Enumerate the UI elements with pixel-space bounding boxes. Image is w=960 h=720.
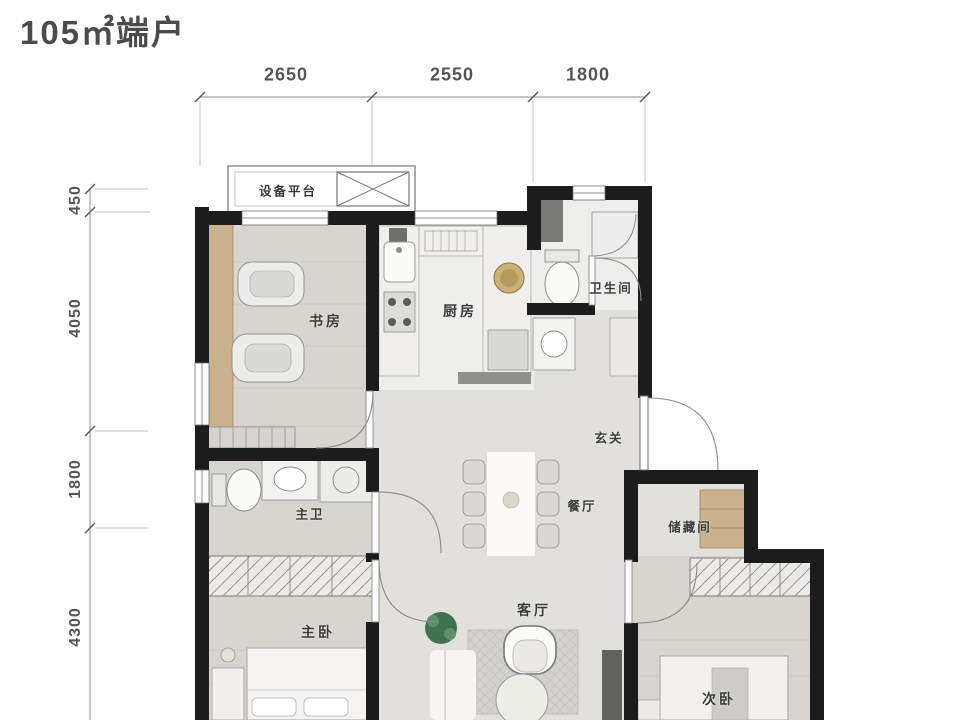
room-label-storage: 储藏间 [668, 517, 712, 536]
room-label-master-bedroom: 主卧 [301, 622, 335, 642]
room-label-kitchen: 厨房 [443, 301, 477, 321]
sofa [430, 650, 476, 720]
room-label-bathroom: 卫生间 [589, 278, 633, 297]
dim-top-1: 2650 [264, 65, 308, 86]
dining-set [463, 452, 559, 556]
room-label-master-bath: 主卫 [295, 504, 324, 523]
room-label-study: 书房 [309, 311, 343, 331]
floorplan-drawing [0, 0, 960, 720]
tall-cabinet [541, 200, 563, 242]
room-label-living: 客厅 [517, 600, 551, 620]
dim-top-2: 2550 [430, 65, 474, 86]
window [195, 470, 209, 503]
lamp-icon [221, 648, 235, 662]
window [573, 186, 605, 200]
room-label-entry: 玄关 [594, 428, 623, 447]
nightstand [638, 700, 660, 720]
room-label-equipment-platform: 设备平台 [259, 181, 317, 200]
ac-unit-icon [337, 172, 409, 206]
dresser [212, 668, 244, 720]
dim-top-3: 1800 [566, 65, 610, 86]
floorplan-page: { "title": "105㎡端户", "dimensions": { "to… [0, 0, 960, 720]
kitchen-peninsula [458, 372, 531, 384]
room-label-dining: 餐厅 [567, 496, 596, 515]
stove-icon [384, 292, 415, 332]
equipment-platform [228, 166, 415, 212]
dim-left-1: 450 [67, 185, 85, 215]
dim-left-3: 1800 [67, 459, 85, 499]
toilet-icon [227, 469, 261, 511]
window [415, 211, 497, 225]
ottoman [496, 674, 548, 720]
tv-cabinet [602, 650, 622, 720]
study-bookshelf [207, 427, 295, 448]
dim-left-2: 4050 [67, 298, 85, 338]
dim-left-4: 4300 [67, 607, 85, 647]
toilet-icon [545, 262, 579, 306]
page-title: 105㎡端户 [20, 6, 186, 54]
window [242, 211, 328, 225]
sink-icon [274, 467, 306, 491]
door-entry [640, 396, 718, 470]
room-label-second-bedroom: 次卧 [702, 689, 736, 709]
hall-cabinet [610, 318, 640, 376]
window [195, 363, 209, 425]
